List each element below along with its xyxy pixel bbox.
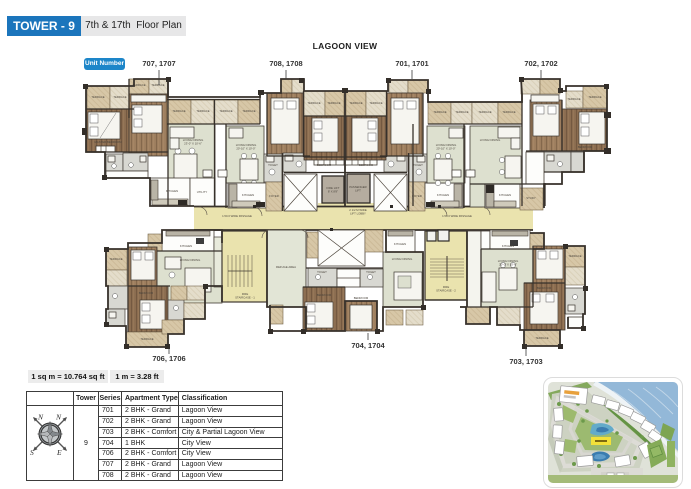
- svg-text:TOILET: TOILET: [413, 163, 423, 167]
- svg-text:BEDROOM: BEDROOM: [537, 286, 552, 290]
- svg-text:KITCHEN: KITCHEN: [242, 193, 254, 197]
- svg-text:TOILET: TOILET: [268, 163, 278, 167]
- svg-text:KITCHEN: KITCHEN: [437, 193, 449, 197]
- svg-text:TERRACE: TERRACE: [478, 110, 491, 114]
- svg-text:TERRACE: TERRACE: [219, 109, 232, 113]
- svg-text:TERRACE: TERRACE: [307, 101, 320, 105]
- svg-text:TERRACE: TERRACE: [535, 336, 548, 340]
- svg-text:LIVING/ DINING: LIVING/ DINING: [180, 258, 201, 262]
- svg-text:BEDROOM: BEDROOM: [317, 293, 332, 297]
- svg-text:UTILITY: UTILITY: [197, 190, 208, 194]
- svg-text:TERRACE: TERRACE: [109, 257, 122, 261]
- svg-text:TERRACE: TERRACE: [588, 95, 601, 99]
- svg-text:TERRACE: TERRACE: [455, 110, 468, 114]
- svg-text:LIFT LOBBY: LIFT LOBBY: [350, 211, 366, 215]
- svg-text:BEDROOM: BEDROOM: [317, 163, 332, 167]
- svg-text:TERRACE: TERRACE: [369, 101, 382, 105]
- svg-text:TERRACE: TERRACE: [433, 110, 446, 114]
- svg-text:20'-10" X 10'-0": 20'-10" X 10'-0": [436, 146, 455, 150]
- svg-text:TERRACE: TERRACE: [568, 254, 581, 258]
- svg-text:23'-0" X 10'-6": 23'-0" X 10'-6": [184, 141, 202, 145]
- svg-text:TERRACE: TERRACE: [140, 337, 153, 341]
- svg-text:STAIRCASE - 2: STAIRCASE - 2: [436, 288, 456, 292]
- svg-text:TERRACE: TERRACE: [196, 109, 209, 113]
- svg-text:TERRACE: TERRACE: [567, 97, 580, 101]
- svg-text:TOILET: TOILET: [317, 270, 327, 274]
- svg-text:8' X 8'8": 8' X 8'8": [328, 189, 338, 193]
- svg-text:KITCHEN: KITCHEN: [502, 244, 514, 248]
- svg-text:20'-10" X 10'-0": 20'-10" X 10'-0": [236, 146, 255, 150]
- svg-text:TERRACE: TERRACE: [91, 95, 104, 99]
- svg-text:REFUGE AREA: REFUGE AREA: [276, 265, 296, 269]
- svg-text:TERRACE: TERRACE: [113, 95, 126, 99]
- svg-text:TERRACE: TERRACE: [172, 109, 185, 113]
- svg-text:TERRACE: TERRACE: [242, 109, 255, 113]
- svg-text:TOILET: TOILET: [366, 270, 376, 274]
- svg-text:STUDY: STUDY: [526, 196, 536, 200]
- svg-text:KITCHEN: KITCHEN: [394, 242, 406, 246]
- svg-text:20'-0" X 10'-6": 20'-0" X 10'-6": [499, 262, 517, 266]
- svg-text:KITCHEN: KITCHEN: [180, 244, 192, 248]
- svg-text:LIVING/ DINING: LIVING/ DINING: [392, 257, 413, 261]
- svg-text:BEDROOM: BEDROOM: [578, 145, 593, 149]
- svg-text:TERRACE: TERRACE: [151, 83, 164, 87]
- svg-text:STAIRCASE - 1: STAIRCASE - 1: [235, 295, 255, 299]
- svg-text:LIFT: LIFT: [355, 188, 361, 192]
- svg-text:BEDROOM: BEDROOM: [139, 291, 154, 295]
- svg-text:LIVING/ DINING: LIVING/ DINING: [480, 138, 501, 142]
- svg-text:MASTER BEDROOM: MASTER BEDROOM: [95, 140, 123, 144]
- svg-text:KITCHEN: KITCHEN: [499, 193, 511, 197]
- svg-text:BEDROOM: BEDROOM: [359, 163, 374, 167]
- svg-text:1.50.0 WIDE PASSAGE: 1.50.0 WIDE PASSAGE: [222, 214, 252, 218]
- svg-text:FOYER: FOYER: [269, 194, 279, 198]
- svg-text:BEDROOM: BEDROOM: [354, 296, 369, 300]
- svg-text:TERRACE: TERRACE: [327, 101, 340, 105]
- svg-text:TERRACE: TERRACE: [349, 101, 362, 105]
- svg-text:1.50.0 WIDE PASSAGE: 1.50.0 WIDE PASSAGE: [442, 214, 472, 218]
- svg-text:TERRACE: TERRACE: [502, 110, 515, 114]
